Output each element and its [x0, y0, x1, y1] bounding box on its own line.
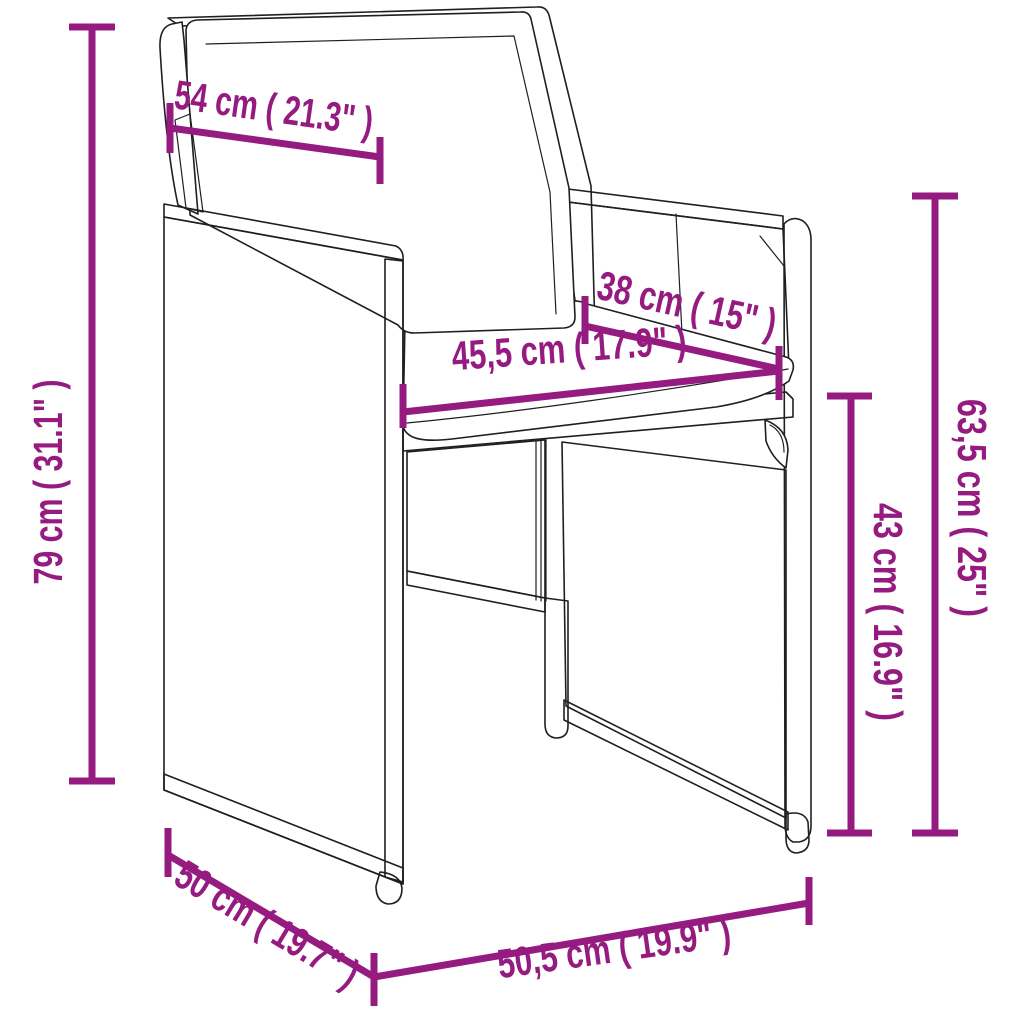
under-seat-base	[407, 440, 568, 738]
apron-bottom-band	[407, 571, 545, 612]
right-panel-front-edge	[784, 219, 811, 842]
dim-base-width: 50,5 cm ( 19.9" )	[374, 877, 809, 987]
product-dimension-diagram: 54 cm ( 21.3" ) 79 cm ( 31.1" ) 38 cm ( …	[0, 0, 1024, 1024]
chair-line-drawing: 54 cm ( 21.3" ) 79 cm ( 31.1" ) 38 cm ( …	[0, 0, 1024, 1024]
dim-label-50cm: 50 cm ( 19.7" )	[167, 851, 367, 997]
right-front-foot	[786, 813, 809, 853]
right-panel-lower	[562, 442, 809, 853]
dim-label-43cm: 43 cm ( 16.9" )	[865, 503, 911, 721]
left-panel-front-edge	[385, 259, 403, 882]
dim-total-back-height: 79 cm ( 31.1" )	[25, 27, 115, 781]
right-panel-bottom-band	[564, 700, 788, 830]
dim-label-63-5cm: 63,5 cm ( 25" )	[949, 399, 995, 617]
dim-label-79cm: 79 cm ( 31.1" )	[25, 380, 71, 585]
armrest-bracket-line	[760, 236, 784, 266]
dim-armrest-height: 63,5 cm ( 25" )	[912, 196, 995, 833]
left-panel-weave	[164, 217, 403, 884]
backrest-top-band	[560, 188, 783, 229]
dim-seat-height: 43 cm ( 16.9" )	[827, 396, 911, 833]
dim-base-depth: 50 cm ( 19.7" )	[167, 828, 374, 1006]
dim-label-50-5cm: 50,5 cm ( 19.9" )	[494, 909, 733, 987]
back-cushion	[160, 12, 575, 333]
left-front-foot	[376, 872, 402, 904]
right-panel-inner-face	[562, 442, 786, 818]
